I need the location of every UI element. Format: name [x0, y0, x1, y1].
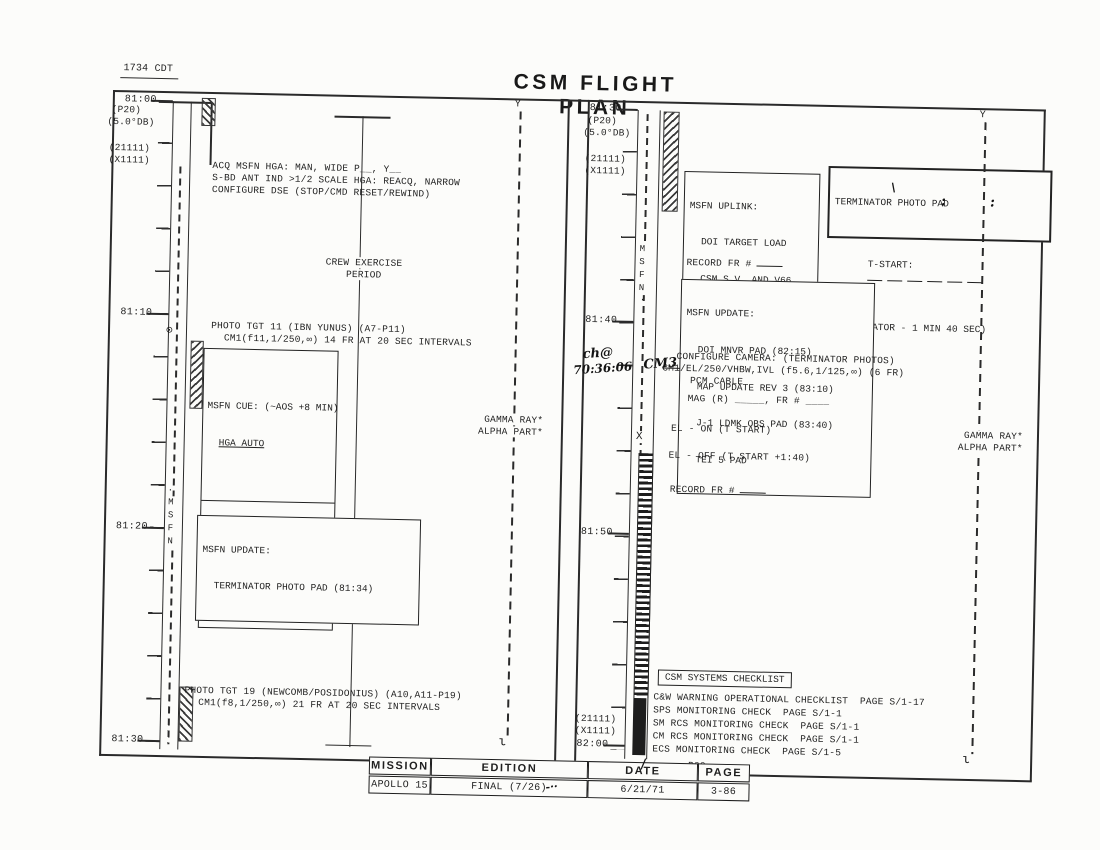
antenna-icon: Y [980, 110, 986, 121]
left-panel-right-border [554, 99, 570, 764]
right-panel-left-border [574, 100, 590, 772]
csm-systems-checklist-box: CSM SYSTEMS CHECKLIST [658, 669, 792, 688]
checklist-item: ECS MONITORING CHECK PAGE S/1-5 [652, 743, 841, 759]
corner-time: 1734 CDT [123, 63, 173, 76]
handwritten-camera-note: CM3 [643, 355, 678, 372]
t-start-label: T-START: [868, 259, 914, 271]
handwritten-note-1: ch@ [582, 345, 613, 362]
footer-value-page: 3-86 [697, 782, 749, 801]
antenna-icon: Y [515, 99, 521, 110]
msfn-cue-title: MSFN CUE: (~AOS +8 MIN) [207, 400, 332, 415]
flag-label: (21111) [585, 153, 627, 166]
flag-label: (P20) [587, 115, 617, 128]
tick-label: 81:50 [563, 526, 613, 538]
msfn-update-box-left: MSFN UPDATE: TERMINATOR PHOTO PAD (81:34… [195, 515, 421, 626]
tick-label: 81:20 [98, 521, 148, 533]
footer-value-mission: APOLLO 15 [368, 775, 430, 794]
alpha-part-label: ALPHA PART* [923, 441, 1023, 455]
pcm-cable-line: PCM CABLE [690, 375, 743, 388]
footer-header-mission: MISSION [369, 756, 431, 775]
left-panel-left-border [99, 90, 115, 756]
dot-marker: · [168, 484, 174, 496]
alpha-part-label: ALPHA PART* [443, 425, 543, 439]
tick-label: 81:40 [567, 315, 617, 327]
right-timeline: 81:30 81:40 81:50 82:00 (P20) (5.0°DB) (… [2, 0, 1100, 21]
footer-value-edition: FINAL (7/26) [430, 777, 587, 798]
handwritten-colon: : [989, 194, 995, 210]
coverage-hatch-block [201, 98, 216, 126]
flag-label: (X1111) [108, 154, 150, 167]
msfn-coverage-label: MSFN [637, 243, 647, 295]
tick-label: 81:30 [93, 734, 143, 746]
record-fr-line: RECORD FR # [670, 484, 766, 498]
msfn-uplink-title: MSFN UPLINK: [690, 200, 814, 215]
crew-exercise-period-label: PERIOD [296, 268, 431, 283]
x-marker: X [636, 431, 643, 443]
flag-label: (5.0°DB) [583, 127, 630, 140]
msfn-update-box-right: MSFN UPDATE: DOI MNVR PAD (82:15) MAP UP… [677, 279, 875, 498]
msfn-coverage-label: MSFN [165, 496, 175, 548]
tick-label: 82:00 [558, 738, 608, 750]
msfn-update-title: MSFN UPDATE: [202, 544, 414, 561]
msfn-cue-item: HGA AUTO [207, 437, 332, 452]
tick-label: 81:10 [102, 307, 152, 319]
left-timeline: 81:00 81:10 81:20 81:30 (P20) (5.0°DB) (… [2, 0, 1100, 21]
footer-header-page: PAGE [698, 763, 750, 782]
footer-value-date: 6/21/71 [587, 780, 697, 800]
el-on-line: EL - ON (T START) [671, 423, 772, 437]
handwritten-date-slash: / [641, 757, 647, 772]
msfn-update-title: MSFN UPDATE: [686, 307, 868, 323]
flight-plan-page: 1734 CDT CSM FLIGHT PLAN 81:00 81:10 81:… [0, 0, 1100, 850]
flag-label: (P20) [111, 104, 141, 117]
flag-label: (X1111) [575, 725, 617, 738]
corner-underline [120, 77, 178, 79]
footer-table: MISSION EDITION DATE PAGE APOLLO 15 FINA… [2, 0, 1100, 21]
recorder-solid-bar [632, 698, 646, 755]
uplink-item: DOI TARGET LOAD [689, 237, 813, 252]
flag-label: (5.0°DB) [107, 116, 154, 129]
footer-header-edition: EDITION [431, 758, 588, 779]
coverage-hatch-block [662, 111, 680, 211]
flight-plan-scan: 1734 CDT CSM FLIGHT PLAN 81:00 81:10 81:… [0, 0, 1100, 850]
handwritten-colon: : [940, 193, 946, 209]
squiggle-icon: ι [962, 752, 970, 767]
handwritten-tick-mark: \ [891, 180, 896, 194]
flag-label: (21111) [109, 142, 151, 155]
tick-label: 81:30 [572, 103, 622, 115]
handwritten-edition-mark: -·· [545, 780, 558, 794]
flag-label: (21111) [575, 713, 617, 726]
terminator-photo-pad-box: TERMINATOR PHOTO PAD T-START: (TERMINATO… [827, 166, 1052, 243]
photo-tgt11-line2: CM1(f11,1/250,∞) 14 FR AT 20 SEC INTERVA… [224, 332, 472, 349]
orbit-marker-icon: ⊙ [166, 323, 173, 337]
flag-label: (X1111) [584, 165, 626, 178]
msfn-update-item: TERMINATOR PHOTO PAD (81:34) [202, 580, 414, 597]
dot-marker: · [640, 294, 646, 306]
squiggle-icon: ι [498, 734, 506, 749]
activity-line [349, 116, 363, 747]
record-fr-line: RECORD FR # [686, 257, 782, 271]
